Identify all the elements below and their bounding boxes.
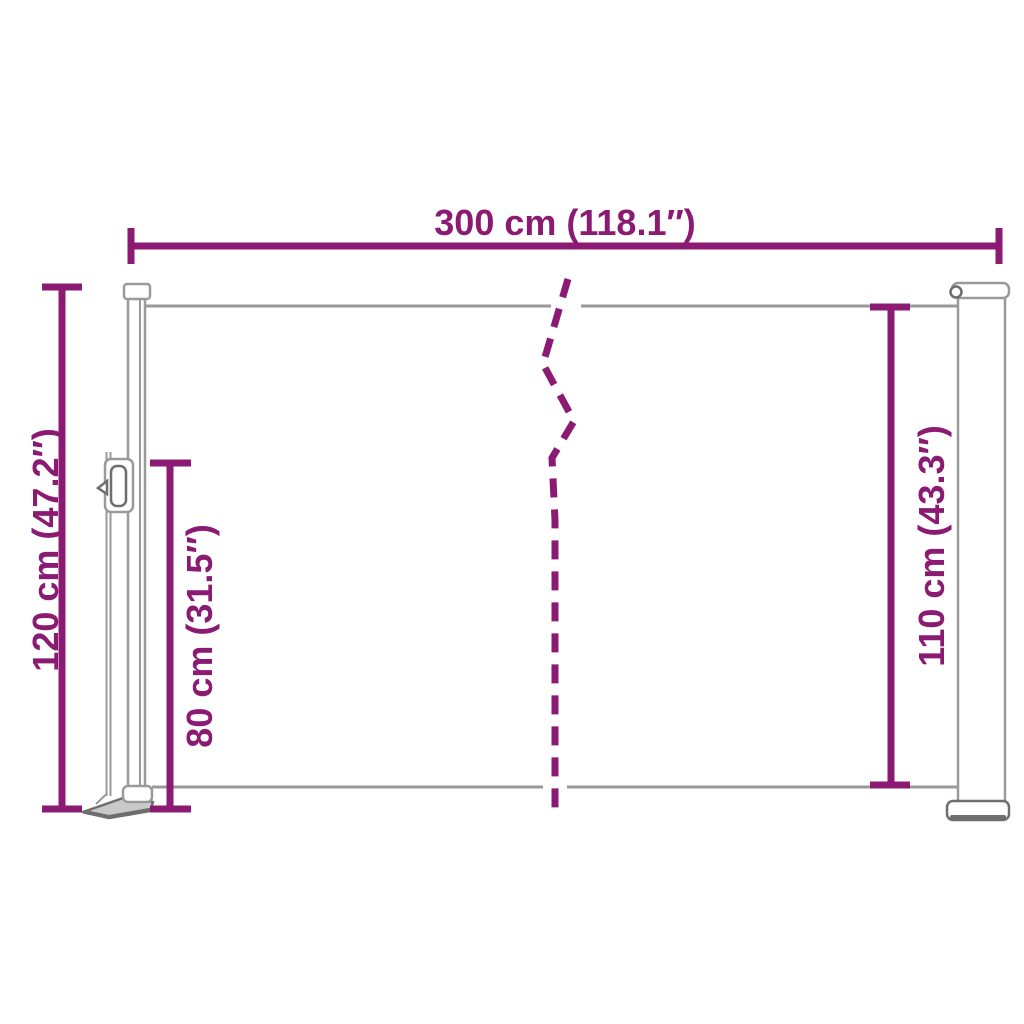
left-pole-cap [124, 284, 150, 299]
height-inner-label: 80 cm (31.5″) [179, 524, 220, 747]
mount-bracket-hook [111, 466, 126, 506]
height-right-label: 110 cm (43.3″) [911, 425, 952, 666]
cassette-cap-end [951, 287, 962, 298]
dimension-height-inner: 80 cm (31.5″) [150, 463, 220, 809]
diagram-canvas: 300 cm (118.1″) 120 cm (47.2″) 80 cm (31… [0, 0, 1024, 1024]
cassette-post [947, 283, 1009, 820]
width-dim-label: 300 cm (118.1″) [434, 202, 695, 243]
left-pole [128, 297, 145, 789]
dimension-height-total: 120 cm (47.2″) [25, 287, 82, 809]
mount-bracket-clip [98, 481, 107, 494]
fabric-break-line [543, 279, 574, 808]
left-post-assembly [83, 284, 153, 818]
dimension-height-right: 110 cm (43.3″) [870, 307, 952, 785]
dimension-width-total: 300 cm (118.1″) [131, 202, 999, 264]
awning-dimension-diagram: 300 cm (118.1″) 120 cm (47.2″) 80 cm (31… [0, 0, 1024, 1024]
cassette-body [958, 295, 1005, 805]
awning-product [83, 279, 1009, 820]
left-pole-foot-joint [123, 786, 152, 802]
mount-bracket [98, 459, 133, 512]
height-total-label: 120 cm (47.2″) [25, 428, 66, 671]
